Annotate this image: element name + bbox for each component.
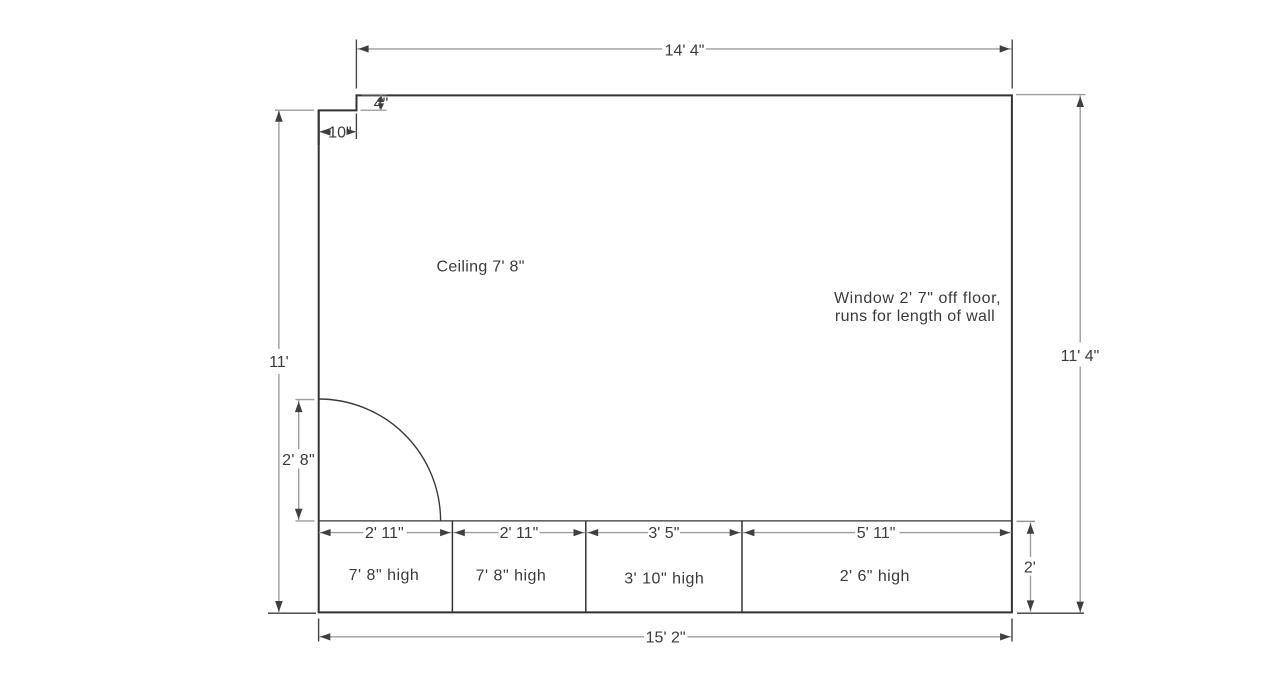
svg-text:2' 11": 2' 11" <box>500 525 539 542</box>
svg-text:runs for length of wall: runs for length of wall <box>835 308 995 325</box>
svg-text:14' 4": 14' 4" <box>665 42 705 59</box>
svg-text:7' 8" high: 7' 8" high <box>476 568 547 585</box>
svg-text:Ceiling 7' 8": Ceiling 7' 8" <box>437 259 525 276</box>
svg-text:2' 8": 2' 8" <box>282 452 315 469</box>
svg-text:7' 8" high: 7' 8" high <box>349 567 420 584</box>
svg-text:11' 4": 11' 4" <box>1061 348 1100 365</box>
svg-text:2': 2' <box>1024 559 1036 576</box>
svg-text:4": 4" <box>374 96 389 113</box>
svg-text:3' 5": 3' 5" <box>648 525 679 542</box>
svg-text:10": 10" <box>328 125 351 142</box>
svg-text:15' 2": 15' 2" <box>646 629 686 646</box>
svg-text:Window 2' 7" off floor,: Window 2' 7" off floor, <box>834 290 1001 307</box>
svg-text:2' 11": 2' 11" <box>365 525 404 542</box>
svg-text:2' 6" high: 2' 6" high <box>840 568 910 585</box>
svg-text:5' 11": 5' 11" <box>857 525 896 542</box>
svg-text:3' 10" high: 3' 10" high <box>624 571 704 588</box>
svg-text:11': 11' <box>269 354 289 371</box>
